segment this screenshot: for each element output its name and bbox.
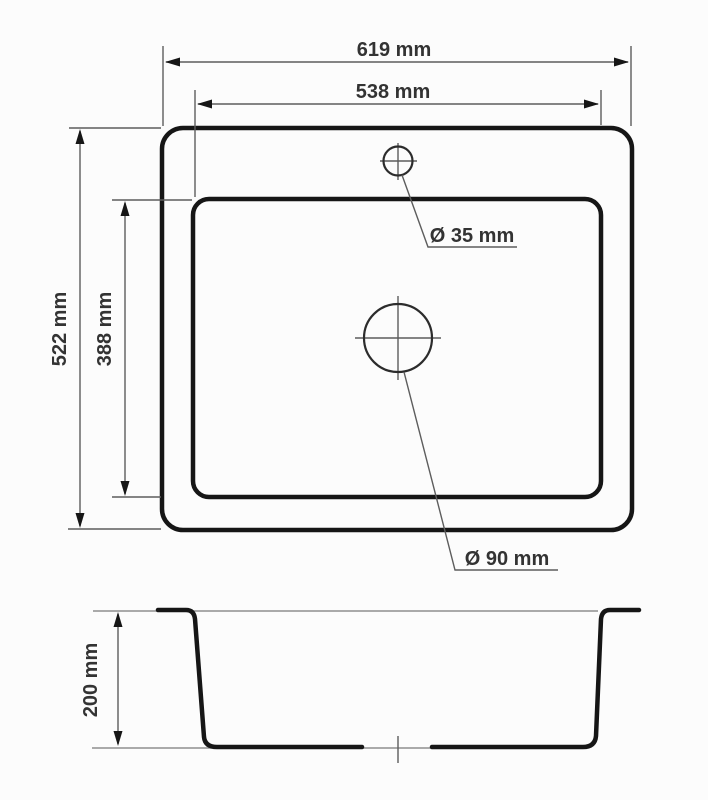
drain-leader-line: [404, 372, 558, 570]
arrowhead-up: [76, 129, 85, 144]
arrowhead-up: [114, 612, 123, 627]
arrowhead-down: [114, 731, 123, 746]
inner-height-label: 388 mm: [94, 292, 116, 367]
faucet-hole-label: Ø 35 mm: [430, 225, 514, 247]
arrowhead-up: [121, 201, 130, 216]
arrowhead-down: [121, 481, 130, 496]
drawing-canvas: Ø 35 mm Ø 90 mm 619 mm 538 mm: [0, 0, 708, 800]
arrowhead-down: [76, 513, 85, 528]
arrowhead-left: [165, 58, 180, 67]
bowl-depth-label: 200 mm: [80, 643, 102, 718]
dimension-bowl-depth: 200 mm: [80, 612, 123, 746]
bowl-profile-right: [432, 610, 639, 747]
outer-width-label: 619 mm: [357, 39, 432, 61]
outer-height-label: 522 mm: [49, 292, 71, 367]
side-view: 200 mm: [80, 610, 639, 763]
sink-dimension-drawing: Ø 35 mm Ø 90 mm 619 mm 538 mm: [0, 0, 708, 800]
arrowhead-right: [614, 58, 629, 67]
sink-inner-bowl: [193, 199, 601, 497]
inner-width-label: 538 mm: [356, 81, 431, 103]
dimension-inner-height: 388 mm: [94, 200, 192, 497]
drain-hole-label: Ø 90 mm: [465, 548, 549, 570]
top-view: Ø 35 mm Ø 90 mm: [162, 128, 632, 570]
arrowhead-left: [197, 100, 212, 109]
arrowhead-right: [584, 100, 599, 109]
sink-outer-rim: [162, 128, 632, 530]
bowl-profile-left: [158, 610, 362, 747]
